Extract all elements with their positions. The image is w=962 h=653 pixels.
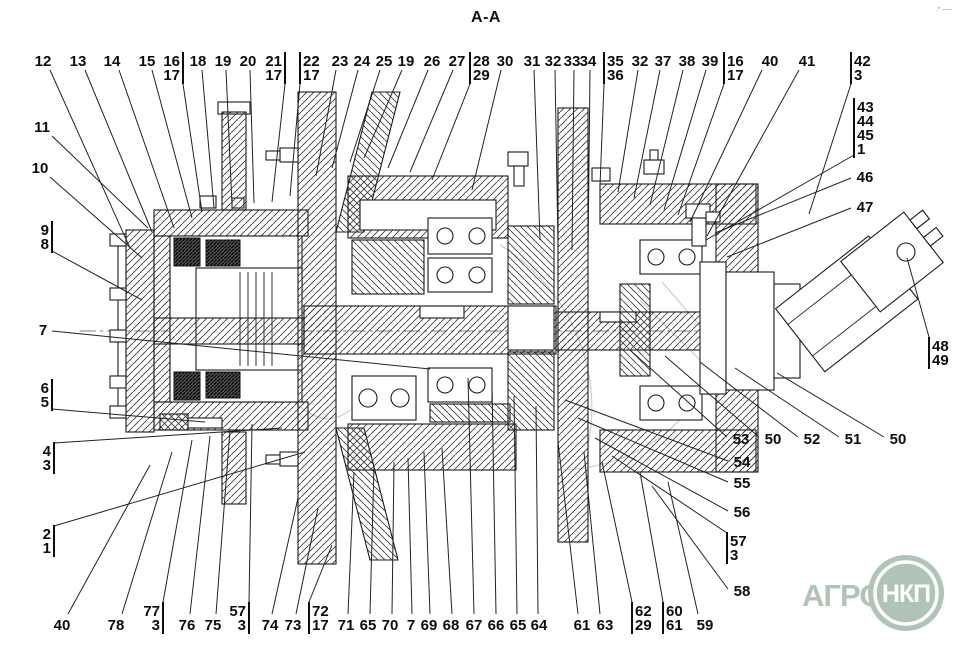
callout-number: 50	[765, 431, 782, 448]
callout-number: 37	[655, 53, 672, 70]
callout-number: 7	[407, 617, 415, 634]
callout-number: 65	[360, 617, 377, 634]
callout-number: 39	[702, 53, 719, 70]
callout-number: 40	[54, 617, 71, 634]
callout-number: 3536	[607, 53, 624, 84]
callout-number: 41	[799, 53, 816, 70]
coupling	[508, 226, 554, 430]
callout-number: 32	[632, 53, 649, 70]
callout-number: 23	[332, 53, 349, 70]
callout-number: 10	[32, 160, 49, 177]
callout-number: 26	[424, 53, 441, 70]
callout-number: 30	[497, 53, 514, 70]
callout-number: 65	[510, 617, 527, 634]
callout-number: 4849	[932, 338, 949, 369]
callout-number: 40	[762, 53, 779, 70]
callout-number: 19	[215, 53, 232, 70]
callout-number: 12	[35, 53, 52, 70]
watermark-badge-text: НКП	[882, 580, 930, 608]
callout-number: 18	[190, 53, 207, 70]
callout-number: 27	[449, 53, 466, 70]
callout-number: 78	[108, 617, 125, 634]
callout-number: 15	[139, 53, 156, 70]
callout-number: 66	[488, 617, 505, 634]
callout-number: 73	[285, 617, 302, 634]
callout-number: 52	[804, 431, 821, 448]
callout-number: 7217	[312, 603, 329, 634]
callout-number: 20	[240, 53, 257, 70]
callout-number: 2117	[265, 53, 282, 84]
callout-number: 1617	[727, 53, 744, 84]
callout-number: 51	[845, 431, 862, 448]
callout-number: 50	[890, 431, 907, 448]
callout-number: 38	[679, 53, 696, 70]
callout-number: 70	[382, 617, 399, 634]
callout-number: 34	[580, 53, 597, 70]
callout-number: 98	[41, 222, 49, 253]
callout-number: 19	[398, 53, 415, 70]
callout-number: 2829	[473, 53, 490, 84]
callout-number: 75	[205, 617, 222, 634]
callout-number: 54	[734, 454, 751, 471]
callout-number: 21	[43, 526, 51, 557]
callout-number: 43	[43, 443, 52, 474]
callout-number: 71	[338, 617, 355, 634]
callout-number: 13	[70, 53, 87, 70]
callout-number: 67	[466, 617, 483, 634]
callout-number: 74	[262, 617, 279, 634]
callout-number: 55	[734, 475, 751, 492]
callout-number: 61	[574, 617, 591, 634]
motor-port-hole	[897, 243, 915, 261]
corner-mark: ·″ ──	[935, 7, 952, 14]
callout-number: 1617	[163, 53, 180, 84]
callout-number: 2217	[303, 53, 320, 84]
callout-number: 59	[697, 617, 714, 634]
callout-number: 33	[564, 53, 581, 70]
callout-number: 63	[597, 617, 614, 634]
callout-number: 7	[39, 322, 47, 339]
callout-number: 14	[104, 53, 121, 70]
callout-number: 32	[545, 53, 562, 70]
callout-number: 65	[41, 380, 49, 411]
callout-number: 46	[857, 169, 874, 186]
callout-number: 64	[531, 617, 548, 634]
callout-number: 11	[34, 119, 50, 136]
callout-number: 6061	[666, 603, 683, 634]
section-title: A-A	[471, 9, 501, 26]
callout-number: 31	[524, 53, 541, 70]
callout-number: 47	[857, 199, 874, 216]
callout-number: 58	[734, 583, 751, 600]
technical-drawing-page: A-A ·″ ──	[0, 0, 962, 653]
callout-number: 53	[733, 431, 750, 448]
callout-number: 68	[443, 617, 460, 634]
callout-number: 56	[734, 504, 751, 521]
callout-number: 69	[421, 617, 438, 634]
callout-number: 6229	[635, 603, 652, 634]
callout-number: 24	[354, 53, 371, 70]
callout-number: 76	[179, 617, 196, 634]
lower-gear-block	[348, 368, 516, 470]
callout-number: 25	[376, 53, 393, 70]
